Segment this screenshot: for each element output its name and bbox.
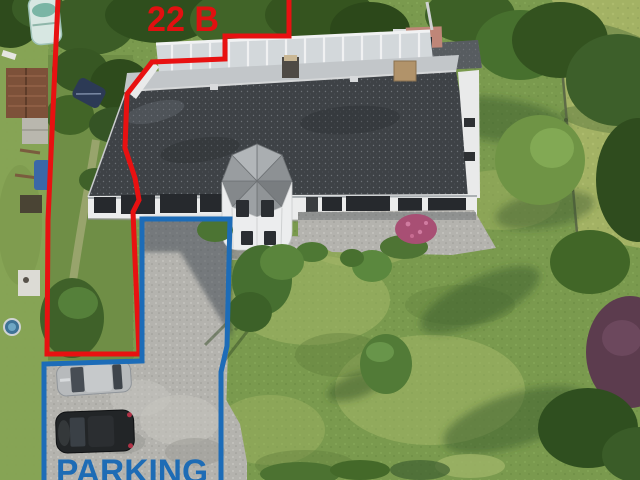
parcel-label: 22 B bbox=[147, 0, 219, 39]
aerial-photo: 22 B PARKING bbox=[0, 0, 640, 480]
hutch bbox=[18, 270, 40, 296]
car-silver bbox=[56, 360, 132, 396]
pink-flower-bush bbox=[395, 214, 437, 244]
aerial-photo-canvas: 22 B PARKING bbox=[0, 0, 640, 480]
car-black bbox=[55, 410, 134, 454]
chimney-right bbox=[394, 61, 416, 81]
turret-roof bbox=[222, 144, 292, 217]
lawn-bush bbox=[360, 334, 412, 394]
turret bbox=[222, 144, 292, 261]
parking-label: PARKING bbox=[56, 453, 208, 480]
